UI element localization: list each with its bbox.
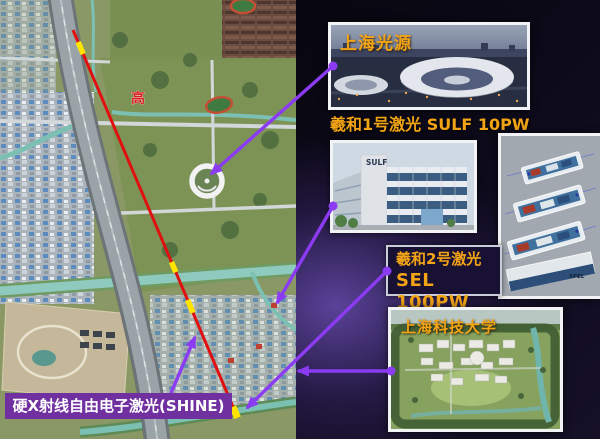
arrow-sel-to-map <box>247 271 387 408</box>
arrow-sulf-to-map <box>277 206 333 303</box>
connector-arrows <box>0 0 600 439</box>
arrow-ssrf-to-map <box>211 66 333 174</box>
presentation-slide: 高 硬X射线自由电子激光(SHINE) <box>0 0 600 439</box>
arrow-shine-to-tunnel <box>171 337 195 393</box>
